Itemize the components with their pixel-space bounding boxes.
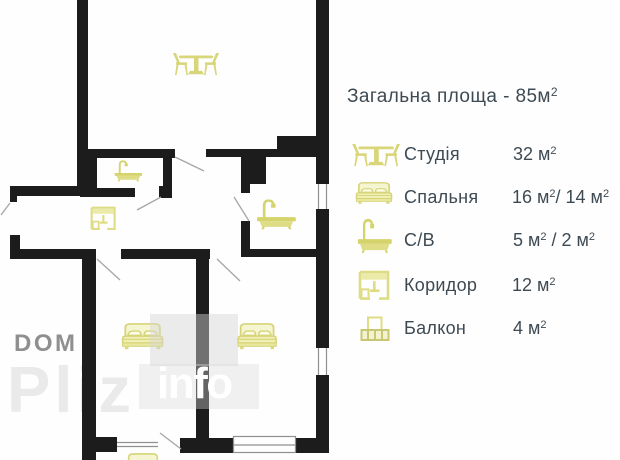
svg-text:Pliz: Pliz (7, 353, 135, 426)
